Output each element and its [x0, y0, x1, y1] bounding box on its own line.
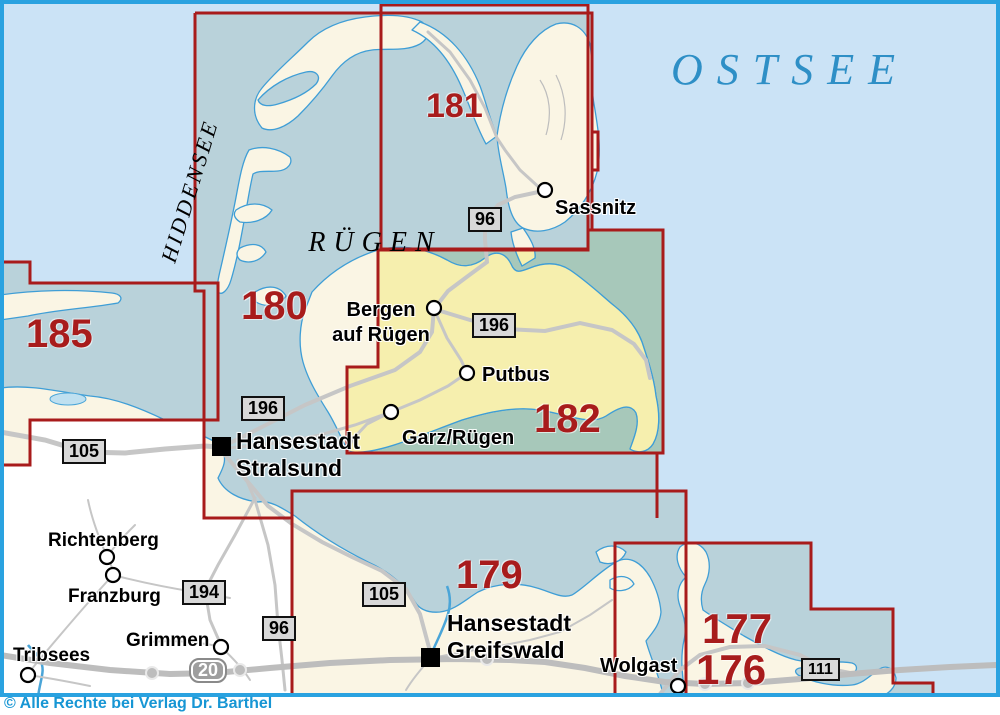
sheet-number-182[interactable]: 182 — [534, 399, 601, 439]
map-canvas: OSTSEE RÜGEN HIDDENSEE 185 180 181 182 1… — [0, 0, 1000, 697]
sheet-number-179[interactable]: 179 — [456, 555, 523, 595]
sheet-number-185[interactable]: 185 — [26, 314, 93, 354]
bergen-label-line1: Bergen — [331, 298, 431, 323]
tribsees-marker — [21, 668, 35, 682]
sheet-number-180[interactable]: 180 — [241, 286, 308, 326]
road-badge-96-south: 96 — [262, 616, 296, 641]
sassnitz-marker — [538, 183, 552, 197]
lake — [50, 393, 86, 405]
garz-label: Garz/Rügen — [402, 427, 514, 450]
greifswald-marker — [421, 648, 440, 667]
road-badge-196-ruegen: 196 — [472, 313, 516, 338]
richtenberg-label: Richtenberg — [48, 530, 159, 552]
grimmen-marker — [214, 640, 228, 654]
road-badge-96-north: 96 — [468, 207, 502, 232]
bergen-label: Bergen auf Rügen — [331, 298, 431, 348]
bergen-label-line2: auf Rügen — [331, 323, 431, 348]
ostsee-label: OSTSEE — [640, 44, 940, 95]
franzburg-marker — [106, 568, 120, 582]
road-badge-111: 111 — [801, 658, 840, 681]
copyright-text: © Alle Rechte bei Verlag Dr. Barthel — [4, 695, 272, 713]
franzburg-label: Franzburg — [68, 586, 161, 608]
wolgast-marker — [671, 679, 685, 693]
stralsund-label-line2: Stralsund — [236, 455, 360, 482]
map-index-page: OSTSEE RÜGEN HIDDENSEE 185 180 181 182 1… — [0, 0, 1000, 715]
stralsund-marker — [212, 437, 231, 456]
sheet-number-177[interactable]: 177 — [702, 608, 772, 650]
putbus-label: Putbus — [482, 364, 550, 387]
road-badge-105-east: 105 — [362, 582, 406, 607]
greifswald-label-line1: Hansestadt — [447, 610, 571, 637]
road-badge-194: 194 — [182, 580, 226, 605]
sassnitz-label: Sassnitz — [555, 197, 636, 220]
road-badge-105-west: 105 — [62, 439, 106, 464]
stralsund-label-line1: Hansestadt — [236, 428, 360, 455]
road-badge-196-stralsund: 196 — [241, 396, 285, 421]
stralsund-label: Hansestadt Stralsund — [236, 428, 360, 482]
richtenberg-marker — [100, 550, 114, 564]
tribsees-label: Tribsees — [13, 645, 90, 667]
sheet-number-181[interactable]: 181 — [426, 89, 483, 123]
putbus-marker — [460, 366, 474, 380]
grimmen-label: Grimmen — [126, 630, 209, 652]
sheet-number-176[interactable]: 176 — [696, 649, 766, 691]
wolgast-label: Wolgast — [600, 655, 677, 678]
greifswald-label: Hansestadt Greifswald — [447, 610, 571, 664]
autobahn-badge-20: 20 — [189, 658, 227, 683]
ruegen-label: RÜGEN — [295, 227, 455, 259]
greifswald-label-line2: Greifswald — [447, 637, 571, 664]
garz-marker — [384, 405, 398, 419]
